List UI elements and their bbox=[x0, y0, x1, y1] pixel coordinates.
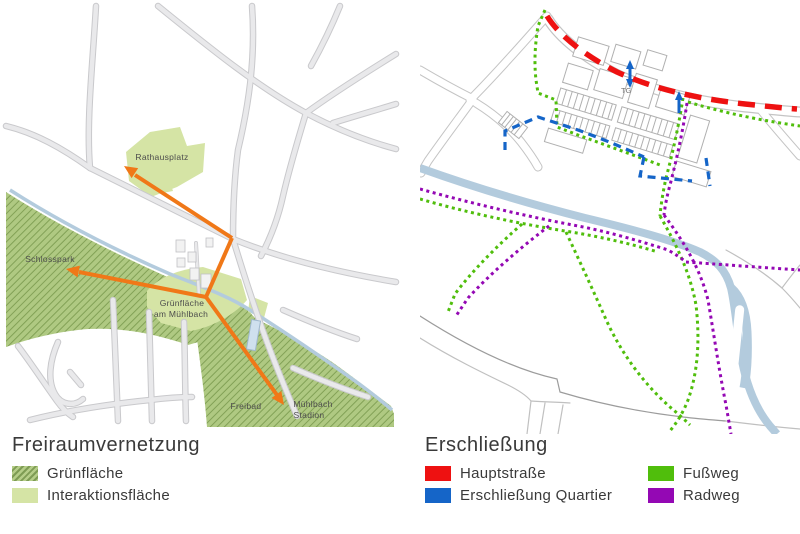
label-tiefgarage: TG bbox=[621, 86, 632, 95]
label-gruenflaeche-2: am Mühlbach bbox=[154, 309, 208, 319]
legend-item-hauptstrasse: Hauptstraße bbox=[425, 465, 648, 482]
swatch-hauptstrasse bbox=[425, 466, 451, 481]
legend-erschliessung: Erschließung Hauptstraße Erschließung Qu… bbox=[425, 434, 740, 504]
legend-item-radweg: Radweg bbox=[648, 487, 740, 504]
legend-freiraumvernetzung: Freiraumvernetzung Grünfläche Interaktio… bbox=[12, 434, 200, 504]
swatch-fussweg bbox=[648, 466, 674, 481]
label-stadion-2: Stadion bbox=[294, 410, 325, 420]
legend-item-erschliessung-quartier: Erschließung Quartier bbox=[425, 487, 648, 504]
label-stadion-1: Mühlbach bbox=[293, 399, 332, 409]
quarter-buildings bbox=[544, 29, 739, 191]
legend-label-gruenflaeche: Grünfläche bbox=[47, 465, 123, 482]
map-freiraumvernetzung: Rathausplatz Schlosspark Grünfläche am M… bbox=[0, 0, 400, 434]
legend-item-interaktionsflaeche: Interaktionsfläche bbox=[12, 487, 200, 504]
urban-planning-infographic: Rathausplatz Schlosspark Grünfläche am M… bbox=[0, 0, 800, 534]
swatch-erschliessung-quartier bbox=[425, 488, 451, 503]
label-gruenflaeche-1: Grünfläche bbox=[160, 298, 205, 308]
legend-label-erschliessung-quartier: Erschließung Quartier bbox=[460, 487, 612, 504]
swatch-radweg bbox=[648, 488, 674, 503]
legend-label-radweg: Radweg bbox=[683, 487, 740, 504]
legend-item-gruenflaeche: Grünfläche bbox=[12, 465, 200, 482]
swatch-interaktionsflaeche bbox=[12, 488, 38, 503]
swatch-gruenflaeche bbox=[12, 466, 38, 481]
legend-label-fussweg: Fußweg bbox=[683, 465, 739, 482]
legend-label-hauptstrasse: Hauptstraße bbox=[460, 465, 546, 482]
label-schlosspark: Schlosspark bbox=[25, 254, 75, 264]
legend-title-erschliessung: Erschließung bbox=[425, 434, 740, 456]
legend-label-interaktionsflaeche: Interaktionsfläche bbox=[47, 487, 170, 504]
label-freibad: Freibad bbox=[231, 401, 262, 411]
legend-title-freiraumvernetzung: Freiraumvernetzung bbox=[12, 434, 200, 456]
label-rathausplatz: Rathausplatz bbox=[135, 152, 188, 162]
map-erschliessung: TG bbox=[420, 0, 800, 434]
legend-item-fussweg: Fußweg bbox=[648, 465, 740, 482]
parking-comb-west bbox=[498, 111, 527, 138]
